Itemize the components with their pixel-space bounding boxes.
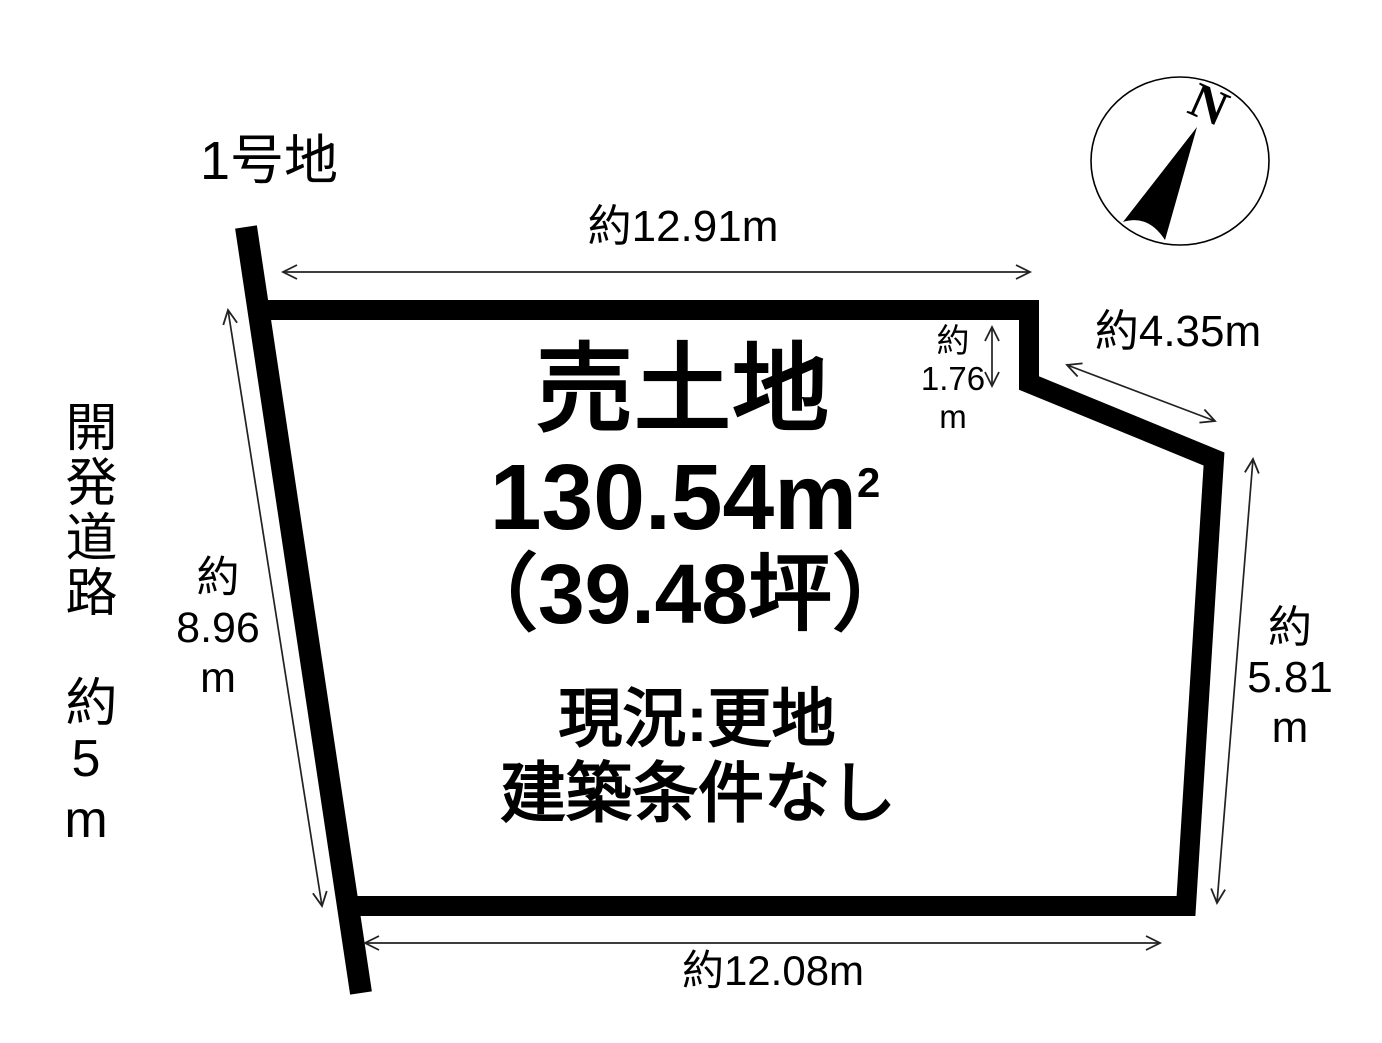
compass-north-icon: N xyxy=(1091,71,1269,245)
road-label-vertical: 開発道路 約5m xyxy=(60,400,112,960)
parcel-area-m2: 130.54m2 xyxy=(490,446,880,548)
parcel-area-value: 130.54m xyxy=(490,445,857,549)
compass-north-label: N xyxy=(1181,71,1237,137)
parcel-building-condition: 建築条件なし xyxy=(500,757,896,830)
parcel-status: 現況:更地 xyxy=(558,684,835,754)
lot-number-label: 1号地 xyxy=(200,132,338,191)
north-arrow-icon xyxy=(1123,127,1197,240)
parcel-area-tsubo: （39.48坪） xyxy=(454,548,916,640)
road-edge-line xyxy=(246,227,361,993)
dimension-label-bottom: 約12.08m xyxy=(682,948,864,994)
parcel-area-superscript: 2 xyxy=(857,459,880,506)
dimension-label-left: 約 8.96 m xyxy=(176,553,260,703)
land-plot-diagram: N 1号地 約12.91m 売土地 130.54m2 （39.48坪） 現況:更… xyxy=(0,0,1382,1043)
dimension-label-diagonal: 約4.35m xyxy=(1095,308,1261,356)
dimension-label-right: 約 5.81 m xyxy=(1247,603,1333,753)
dimension-label-notch: 約 1.76 m xyxy=(921,322,985,436)
dimension-label-top: 約12.91m xyxy=(588,203,779,251)
parcel-title: 売土地 xyxy=(536,337,830,444)
